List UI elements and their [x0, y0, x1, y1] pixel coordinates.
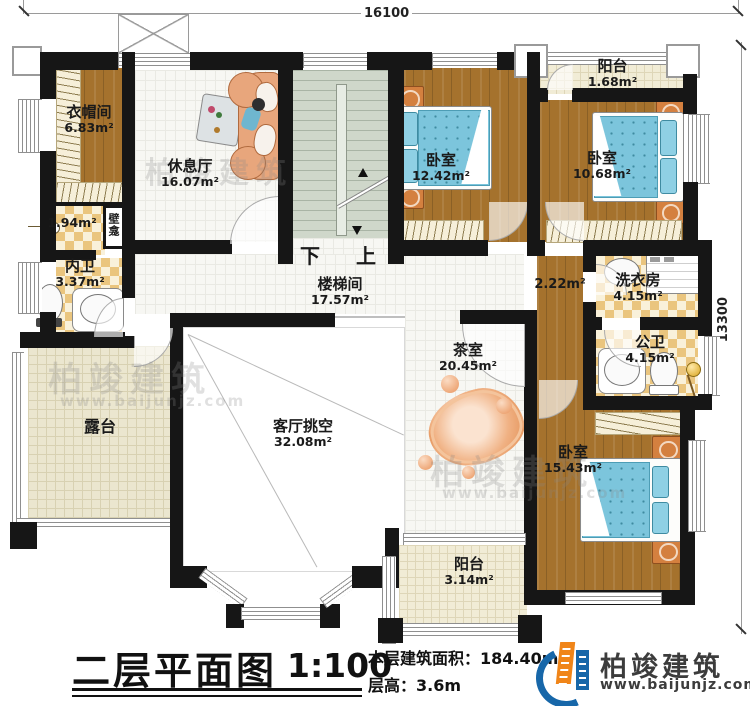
- wall: [540, 88, 548, 102]
- label-niche: 壁龛: [106, 208, 121, 242]
- bedroom3-closet: [595, 412, 683, 435]
- rug-ball: [441, 375, 459, 393]
- drawing-title: 二层平面图: [72, 640, 277, 695]
- label-shower-area: 1.94m²: [40, 216, 104, 230]
- window: [432, 53, 499, 68]
- label-corridor: 2.22m²: [522, 278, 598, 293]
- washer-controls: [650, 257, 660, 262]
- label-lounge: 休息厅 16.07m²: [140, 158, 240, 190]
- window: [704, 336, 720, 396]
- window: [403, 533, 526, 545]
- balcony-railing: [402, 623, 524, 636]
- label-stairwell: 楼梯间 17.57m²: [294, 276, 386, 308]
- column: [12, 46, 42, 76]
- wall: [460, 310, 537, 324]
- wall: [583, 396, 712, 410]
- wall: [583, 317, 602, 330]
- title-underline: [72, 688, 362, 691]
- wall: [320, 604, 340, 628]
- wall: [527, 52, 540, 256]
- label-bedroom2: 卧室 10.68m²: [552, 150, 652, 182]
- toilet-tank: [649, 385, 679, 395]
- column: [378, 618, 403, 643]
- rug-ball: [462, 466, 475, 479]
- wall: [640, 317, 698, 330]
- label-laundry: 洗衣房 4.15m²: [598, 272, 678, 304]
- dim-tick: [18, 5, 29, 16]
- wall: [683, 74, 697, 114]
- wall: [122, 52, 135, 298]
- flowers-icon: [208, 106, 215, 113]
- rug-ball: [418, 455, 433, 470]
- column: [10, 522, 37, 549]
- floor-height-info: 层高：3.6m: [368, 672, 461, 696]
- title-underline: [72, 695, 362, 697]
- washer-controls: [664, 257, 674, 262]
- room-terrace-floor: [28, 346, 173, 528]
- label-balcony-top: 阳台 1.68m²: [570, 58, 655, 90]
- bay-window: [198, 568, 247, 608]
- label-inner-bath: 内卫 3.37m²: [42, 258, 118, 290]
- window: [565, 592, 662, 604]
- void-beam: [335, 316, 405, 318]
- label-terrace: 露台: [60, 418, 140, 436]
- bay-window: [241, 607, 327, 620]
- window: [18, 99, 42, 153]
- stair-up-label: 上: [356, 240, 376, 269]
- right-dimension-line: [741, 42, 742, 634]
- person-head: [252, 98, 265, 111]
- label-public-bath: 公卫 4.15m²: [610, 334, 690, 366]
- window: [18, 262, 42, 314]
- wall: [278, 52, 293, 264]
- label-balcony-bottom: 阳台 3.14m²: [425, 556, 513, 588]
- label-bedroom1: 卧室 12.42m²: [395, 152, 487, 184]
- pillow: [660, 158, 677, 194]
- stair-arrow-up: [358, 168, 368, 177]
- label-tea-room: 茶室 20.45m²: [420, 342, 516, 374]
- label-cloakroom: 衣帽间 6.83m²: [52, 104, 126, 136]
- wall: [135, 240, 232, 254]
- brand-url: www.baijunjz.com: [600, 677, 750, 693]
- pillow: [652, 502, 669, 534]
- stair-arrow-down: [352, 226, 362, 235]
- stair-rail: [336, 84, 347, 236]
- floor-plan: 16100 13300: [0, 0, 750, 706]
- rug-ball: [496, 398, 512, 414]
- logo-bar-blue: [576, 650, 589, 690]
- wall: [404, 240, 488, 256]
- roof-window-icon: [118, 14, 189, 54]
- label-living-void: 客厅挑空 32.08m²: [248, 418, 358, 450]
- terrace-railing: [12, 352, 24, 526]
- wall: [683, 182, 698, 256]
- terrace-railing: [16, 518, 174, 528]
- wall: [170, 313, 183, 572]
- window: [688, 440, 706, 532]
- stair-down-label: 下: [300, 240, 320, 269]
- window: [688, 114, 710, 184]
- wall: [40, 151, 56, 262]
- column: [518, 615, 542, 643]
- wall: [572, 88, 683, 102]
- brand-logo-icon: [536, 640, 594, 698]
- flowers-icon: [214, 127, 220, 133]
- wall: [40, 52, 56, 99]
- wall: [170, 313, 335, 327]
- wall: [583, 256, 596, 272]
- column: [666, 44, 700, 78]
- wall: [698, 240, 712, 336]
- pillow: [660, 120, 677, 156]
- window: [303, 53, 369, 68]
- label-bedroom3: 卧室 15.43m²: [528, 444, 618, 476]
- dim-width: 16100: [361, 6, 412, 21]
- pillow: [652, 466, 669, 498]
- flowers-icon: [216, 112, 222, 118]
